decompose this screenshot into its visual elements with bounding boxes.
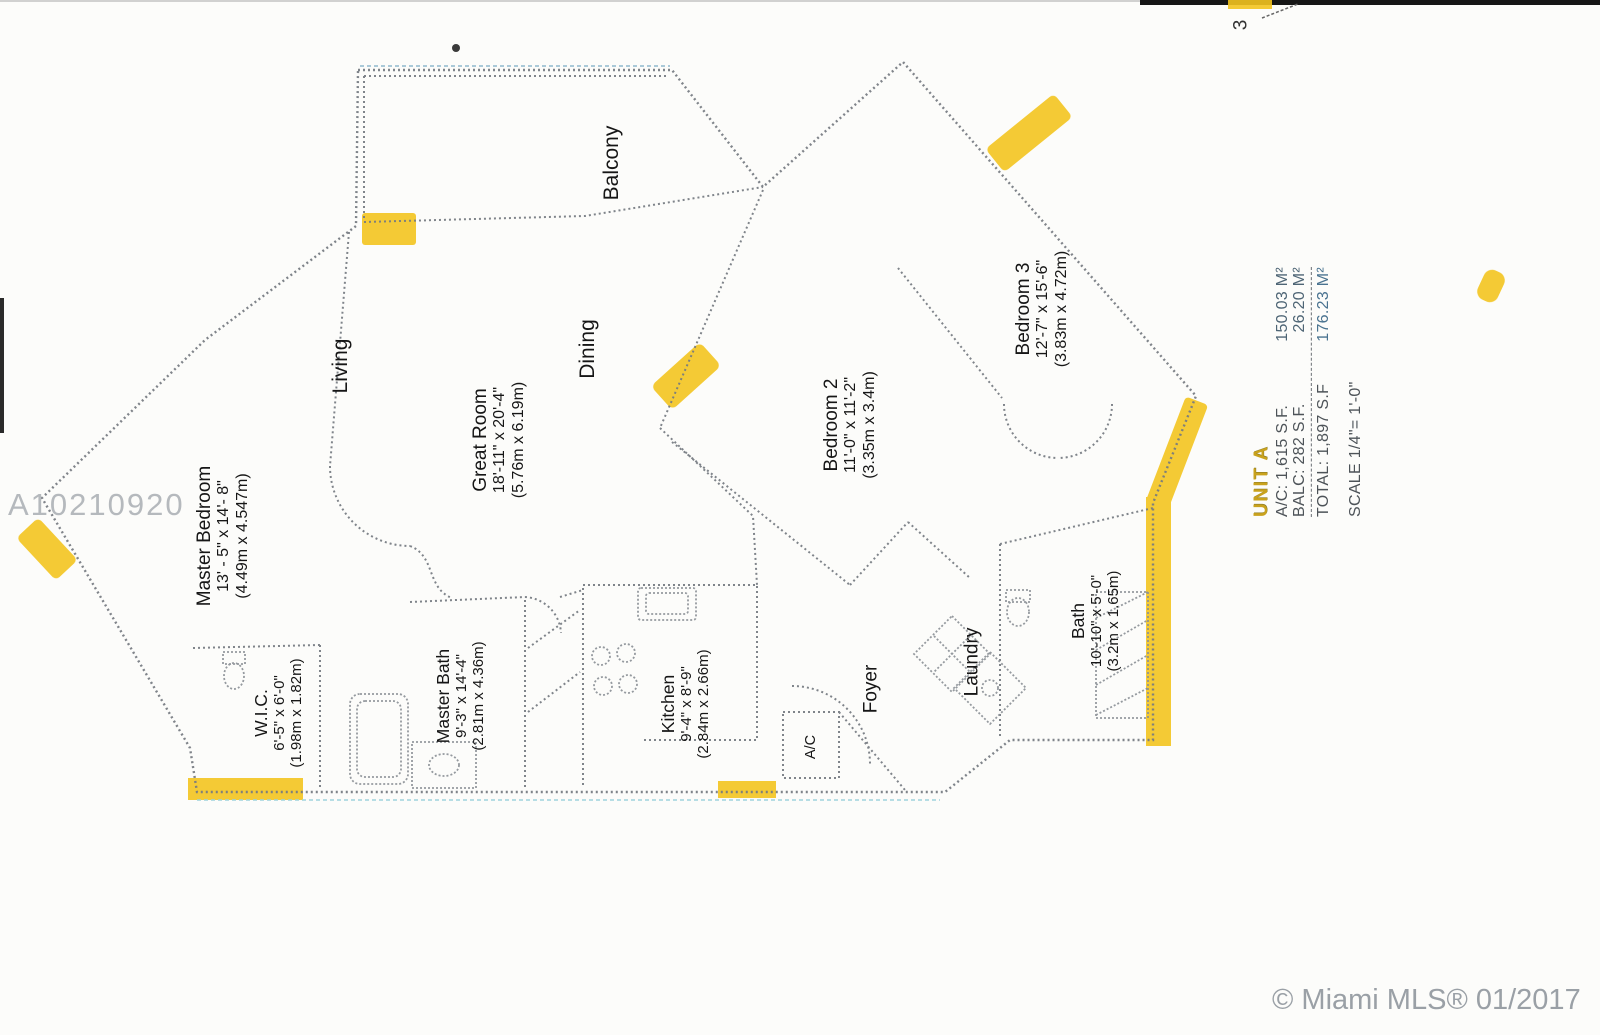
room-label-foyer: Foyer xyxy=(860,665,881,714)
bathtub xyxy=(350,694,408,784)
highlight-unit-blob xyxy=(1474,267,1507,305)
ink-dot xyxy=(452,44,460,52)
room-label-wic: W.I.C. 6'-5" x 6'-0" (1.98m x 1.82m) xyxy=(252,658,306,767)
highlight-top-edge xyxy=(1228,0,1272,9)
toilet xyxy=(224,663,244,689)
room-label-balcony: Balcony xyxy=(600,126,624,201)
mls-watermark: A10210920 xyxy=(8,487,185,523)
highlight-bedroom3-wall xyxy=(985,94,1072,173)
highlight-right-diagonal xyxy=(1146,396,1209,509)
room-label-living: Living xyxy=(329,339,353,394)
highlight-bottom-center-wall xyxy=(718,781,776,798)
unit-info-panel: UNIT A A/C: 1,615 S.F. 150.03 M² BALC: 2… xyxy=(1251,267,1365,517)
page-corner-digit: 3 xyxy=(1230,20,1252,31)
room-label-ac: A/C xyxy=(803,735,819,759)
stove-burner xyxy=(592,647,610,665)
ac-area-row: A/C: 1,615 S.F. 150.03 M² xyxy=(1274,267,1291,517)
total-area-row: TOTAL: 1,897 S.F 176.23 M² xyxy=(1311,267,1332,517)
unit-title: UNIT A xyxy=(1251,267,1273,517)
highlight-right-wall xyxy=(1146,497,1171,746)
room-label-great-room: Great Room 18'-11" x 20'-4" (5.76m x 6.1… xyxy=(470,382,528,498)
room-label-master-bedroom: Master Bedroom 13' - 5" x 14'- 8" (4.49m… xyxy=(194,466,252,606)
highlight-bottom-left-wall xyxy=(188,778,303,800)
balcony-area-row: BALC: 282 S.F. 26.20 M² xyxy=(1291,267,1308,517)
room-label-master-bath: Master Bath 9'-3" x 14'-4" (2.81m x 4.36… xyxy=(434,641,488,750)
room-label-bath: Bath 10'-10" x 5'-0" (3.2m x 1.65m) xyxy=(1069,571,1123,672)
room-label-bedroom-2: Bedroom 2 11'-0" x 11'-2" (3.35m x 3.4m) xyxy=(821,371,879,479)
scale-note: SCALE 1/4"= 1'-0" xyxy=(1347,267,1365,517)
highlight-balcony-door xyxy=(362,213,416,245)
highlight-left-corner xyxy=(16,518,77,581)
floorplan-page: Balcony Living Dining Great Room 18'-11"… xyxy=(0,0,1600,1035)
mls-copyright: © Miami MLS® 01/2017 xyxy=(1272,984,1581,1017)
highlight-bedroom2-door xyxy=(651,342,721,410)
room-label-bedroom-3: Bedroom 3 12'-7" x 15'-6" (3.83m x 4.72m… xyxy=(1013,251,1071,367)
room-label-dining: Dining xyxy=(576,319,600,379)
room-label-kitchen: Kitchen 9'-4" x 8'-9" (2.84m x 2.66m) xyxy=(659,649,713,758)
room-label-laundry: Laundry xyxy=(961,628,982,697)
